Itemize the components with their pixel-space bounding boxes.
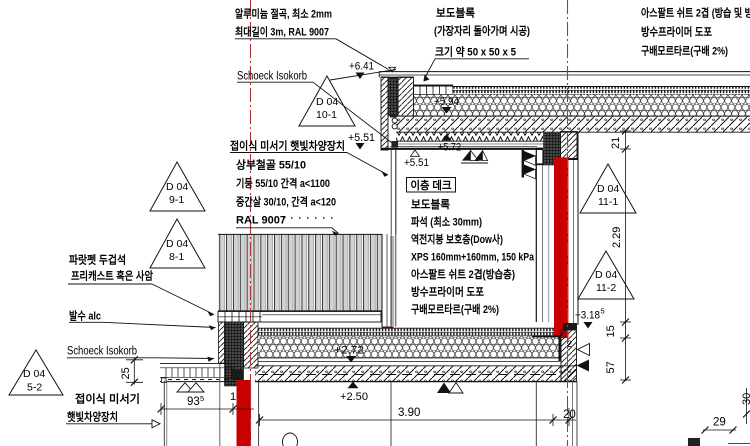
svg-text:크기 약 50 x 50 x 5: 크기 약 50 x 50 x 5 [435,45,516,59]
svg-text:구배모르타르(구배 2%): 구배모르타르(구배 2%) [411,302,499,316]
svg-text:11-2: 11-2 [596,282,616,294]
svg-text:9-1: 9-1 [169,194,184,206]
svg-text:상부철골 55/10: 상부철골 55/10 [236,158,306,172]
svg-text:30: 30 [741,393,750,405]
svg-text:25: 25 [120,367,132,379]
svg-text:보도블록: 보도블록 [411,198,450,211]
svg-text:중간살 30/10, 간격 a<120: 중간살 30/10, 간격 a<120 [236,195,336,209]
svg-text:D 04: D 04 [23,368,45,380]
svg-text:최대길이 3m, RAL 9007: 최대길이 3m, RAL 9007 [235,25,329,39]
svg-text:2: 2 [567,339,572,349]
svg-text:D 04: D 04 [166,238,188,250]
svg-text:3.90: 3.90 [398,407,420,419]
svg-text:20: 20 [563,409,576,421]
svg-text:접이식 미서기 햇빛차양장치: 접이식 미서기 햇빛차양장치 [230,139,345,153]
svg-text:Schoeck Isokorb: Schoeck Isokorb [67,346,137,358]
svg-text:기둥 55/10 간격 a<1100: 기둥 55/10 간격 a<1100 [236,176,330,190]
svg-text:방수프라이머 도포: 방수프라이머 도포 [641,25,712,39]
svg-text:역전지붕 보호층(Dow사): 역전지붕 보호층(Dow사) [411,232,503,246]
svg-text:아스팔트 쉬트 2겹 (방습 및 방: 아스팔트 쉬트 2겹 (방습 및 방 [641,6,750,20]
svg-text:2.29: 2.29 [611,227,623,248]
svg-text:D 04: D 04 [166,181,188,193]
svg-text:1: 1 [230,391,236,403]
svg-text:93: 93 [187,396,200,408]
svg-text:+6.41: +6.41 [349,61,374,73]
svg-text:10-1: 10-1 [316,109,337,121]
svg-text:+5.51: +5.51 [404,157,429,169]
svg-text:이층 데크: 이층 데크 [411,178,452,192]
svg-text:RAL 9007: RAL 9007 [236,215,286,227]
svg-text:아스팔트 쉬트 2겹(방습층): 아스팔트 쉬트 2겹(방습층) [411,267,515,281]
svg-text:+5.72: +5.72 [438,142,461,154]
svg-text:(가장자리 돌아가며 시공): (가장자리 돌아가며 시공) [434,24,530,38]
svg-text:+2.72: +2.72 [334,345,364,357]
svg-text:+5.94: +5.94 [434,96,459,108]
svg-text:+5.51: +5.51 [348,132,375,144]
svg-text:8-1: 8-1 [169,251,184,263]
svg-text:57: 57 [605,361,617,373]
svg-text:파석 (최소 30mm): 파석 (최소 30mm) [411,215,482,229]
svg-text:D 04: D 04 [595,269,617,281]
svg-text:5: 5 [601,307,605,316]
svg-text:알루미늄 절곡, 최소 2mm: 알루미늄 절곡, 최소 2mm [235,7,332,21]
svg-text:29: 29 [713,417,726,429]
svg-text:+2.50: +2.50 [340,391,368,403]
svg-text:+3.18: +3.18 [575,310,600,322]
svg-text:발수 alc: 발수 alc [69,309,101,323]
svg-text:11-1: 11-1 [598,196,618,208]
svg-text:D 04: D 04 [316,96,338,108]
svg-text:햇빛차양장치: 햇빛차양장치 [67,410,118,424]
svg-text:D 04: D 04 [597,183,619,195]
svg-text:구배모르타르(구배 2%): 구배모르타르(구배 2%) [641,44,728,58]
svg-text:Schoeck Isokorb: Schoeck Isokorb [237,71,307,83]
svg-text:21: 21 [610,137,622,149]
svg-text:5: 5 [200,394,204,403]
svg-text:파랏펫 두겁석: 파랏펫 두겁석 [69,253,126,267]
svg-text:15: 15 [605,325,617,337]
svg-text:프리캐스트 혹은 사암: 프리캐스트 혹은 사암 [71,269,153,283]
svg-text:보도블록: 보도블록 [436,7,475,20]
svg-text:5-2: 5-2 [27,382,42,394]
svg-text:접이식 미서기: 접이식 미서기 [75,392,140,406]
svg-text:방수프라이머 도포: 방수프라이머 도포 [411,285,484,299]
svg-text:XPS 160mm+160mm, 150 kPa: XPS 160mm+160mm, 150 kPa [411,252,535,264]
